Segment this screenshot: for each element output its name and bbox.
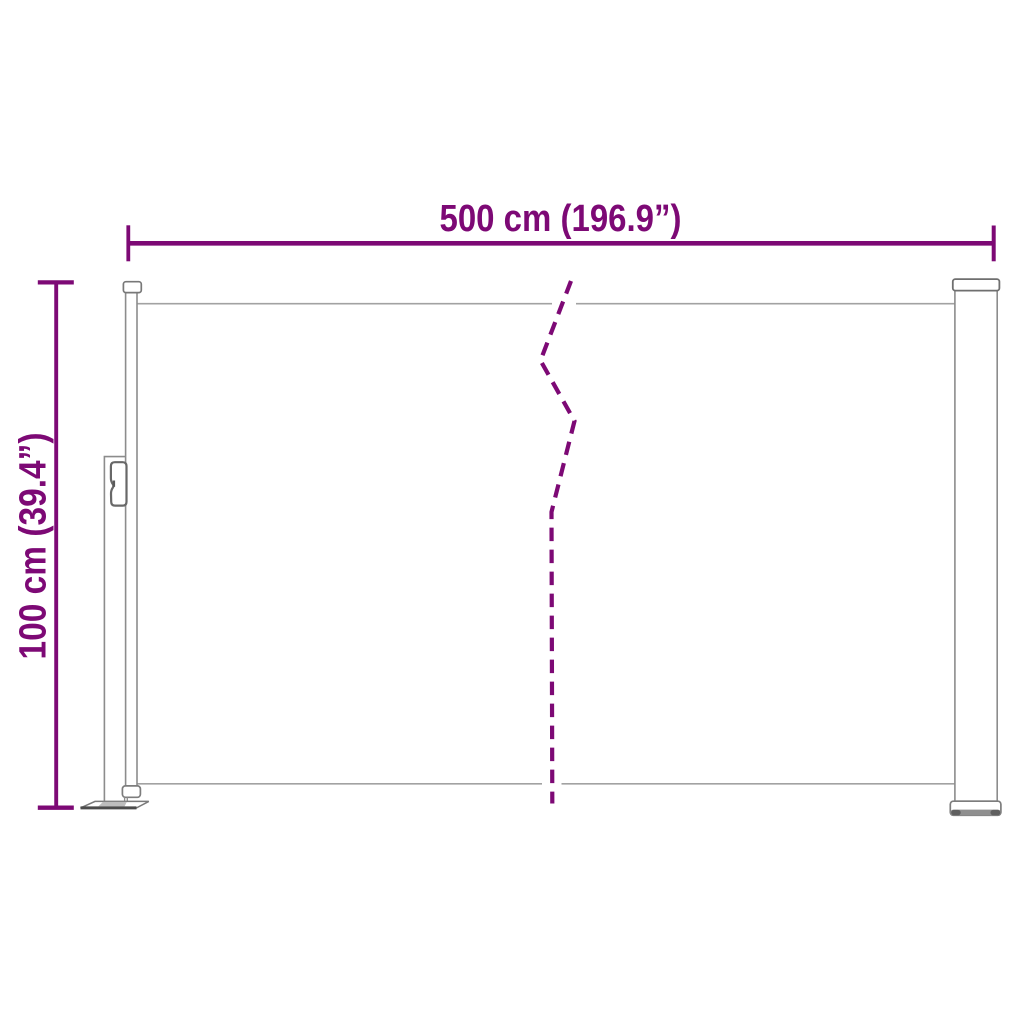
svg-text:100 cm (39.4”): 100 cm (39.4”) [13, 433, 55, 660]
svg-text:500 cm (196.9”): 500 cm (196.9”) [440, 198, 682, 240]
